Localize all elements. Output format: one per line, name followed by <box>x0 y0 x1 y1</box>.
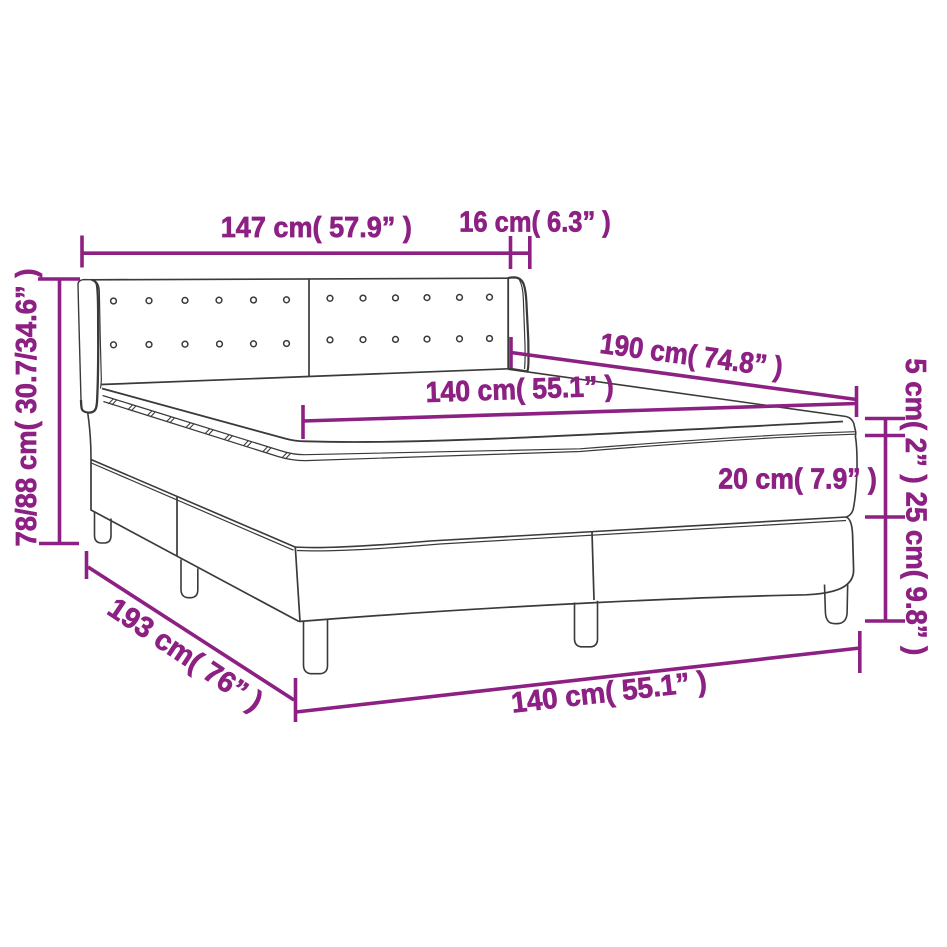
svg-text:140 cm( 55.1” ): 140 cm( 55.1” ) <box>425 370 614 409</box>
svg-text:147 cm( 57.9” ): 147 cm( 57.9” ) <box>221 211 412 243</box>
svg-text:25 cm( 9.8” ): 25 cm( 9.8” ) <box>901 492 934 656</box>
svg-text:5 cm( 2” ): 5 cm( 2” ) <box>900 358 933 483</box>
svg-text:20 cm( 7.9” ): 20 cm( 7.9” ) <box>718 462 877 494</box>
svg-text:16 cm( 6.3” ): 16 cm( 6.3” ) <box>459 205 611 238</box>
svg-text:78/88 cm( 30.7/34.6” ): 78/88 cm( 30.7/34.6” ) <box>9 268 42 546</box>
